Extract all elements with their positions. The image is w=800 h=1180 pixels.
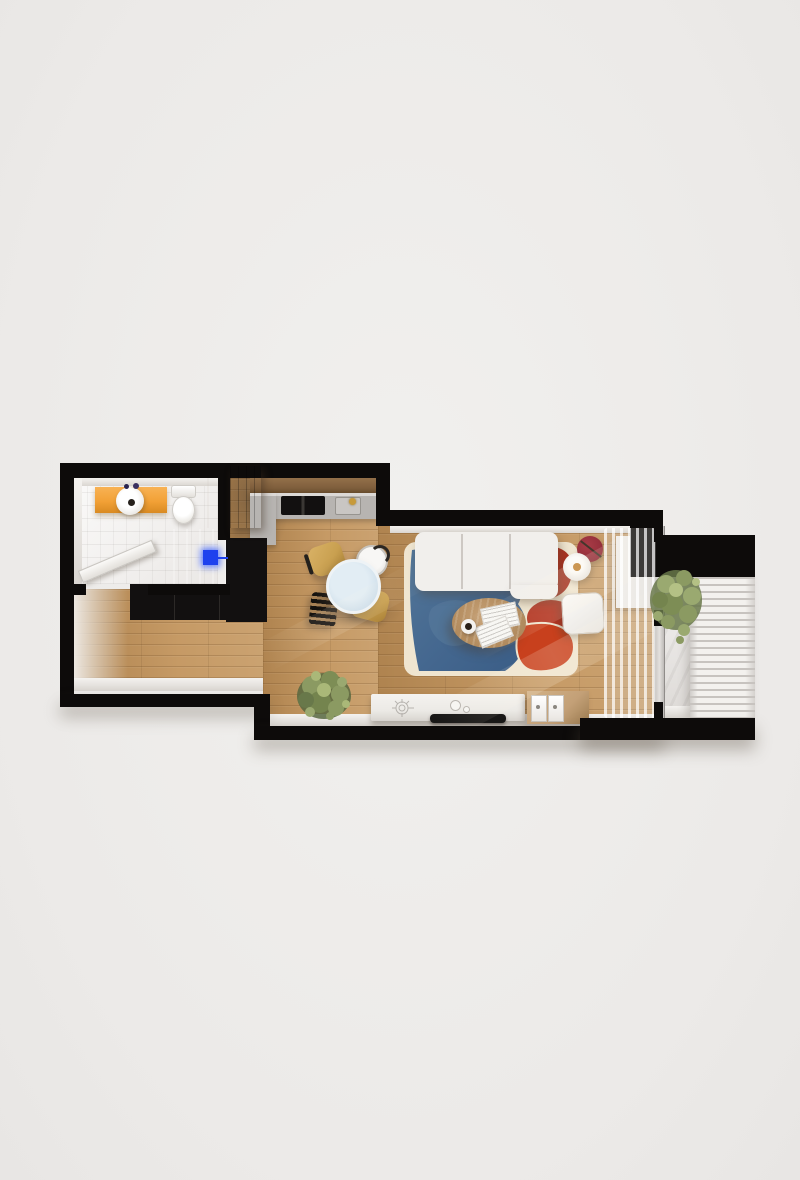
floorplan-render <box>0 0 800 1180</box>
sofa-chaise <box>510 585 558 599</box>
hallway-wall-face-bottom <box>74 678 263 691</box>
wall-top-left-block <box>60 463 390 478</box>
sink-drain <box>128 499 135 506</box>
coffee-cup <box>465 623 472 630</box>
front-door <box>230 466 261 528</box>
console-knob-icon <box>463 706 470 713</box>
wall-top-living <box>376 510 640 526</box>
drawer-knob-icon <box>553 705 557 709</box>
kitchen-counter-black-corner <box>226 538 267 622</box>
wall-west <box>60 463 74 707</box>
wall-bathroom-divider <box>148 584 230 595</box>
window-mullion <box>654 702 663 718</box>
kitchen-sink <box>335 497 361 515</box>
balcony-plant <box>646 562 708 646</box>
potted-plant <box>290 656 358 724</box>
wall-bathroom-east <box>218 478 230 540</box>
window-mullion <box>654 526 663 542</box>
wall-bottom-hallway <box>60 694 268 707</box>
sofa-seam <box>509 534 511 589</box>
wall-balcony-bottom <box>580 718 755 740</box>
dining-table <box>326 559 381 614</box>
wall-bathroom-divider-stub <box>74 584 86 595</box>
lamp-hub <box>573 563 581 571</box>
bathroom-wall-face-left <box>74 478 82 584</box>
cooktop <box>281 496 325 515</box>
sofa-seam <box>461 534 463 589</box>
ottoman <box>561 592 605 635</box>
washing-machine-display <box>203 550 218 565</box>
faucet-handle-icon <box>133 483 139 489</box>
tv <box>430 714 506 723</box>
sofa <box>415 532 558 591</box>
console-doodle-icon <box>390 698 416 718</box>
drawer-knob-icon <box>536 705 540 709</box>
toilet-bowl <box>172 496 195 524</box>
gold-faucet-icon <box>349 498 356 505</box>
console-knob-icon <box>450 700 461 711</box>
faucet-icon <box>124 484 129 489</box>
